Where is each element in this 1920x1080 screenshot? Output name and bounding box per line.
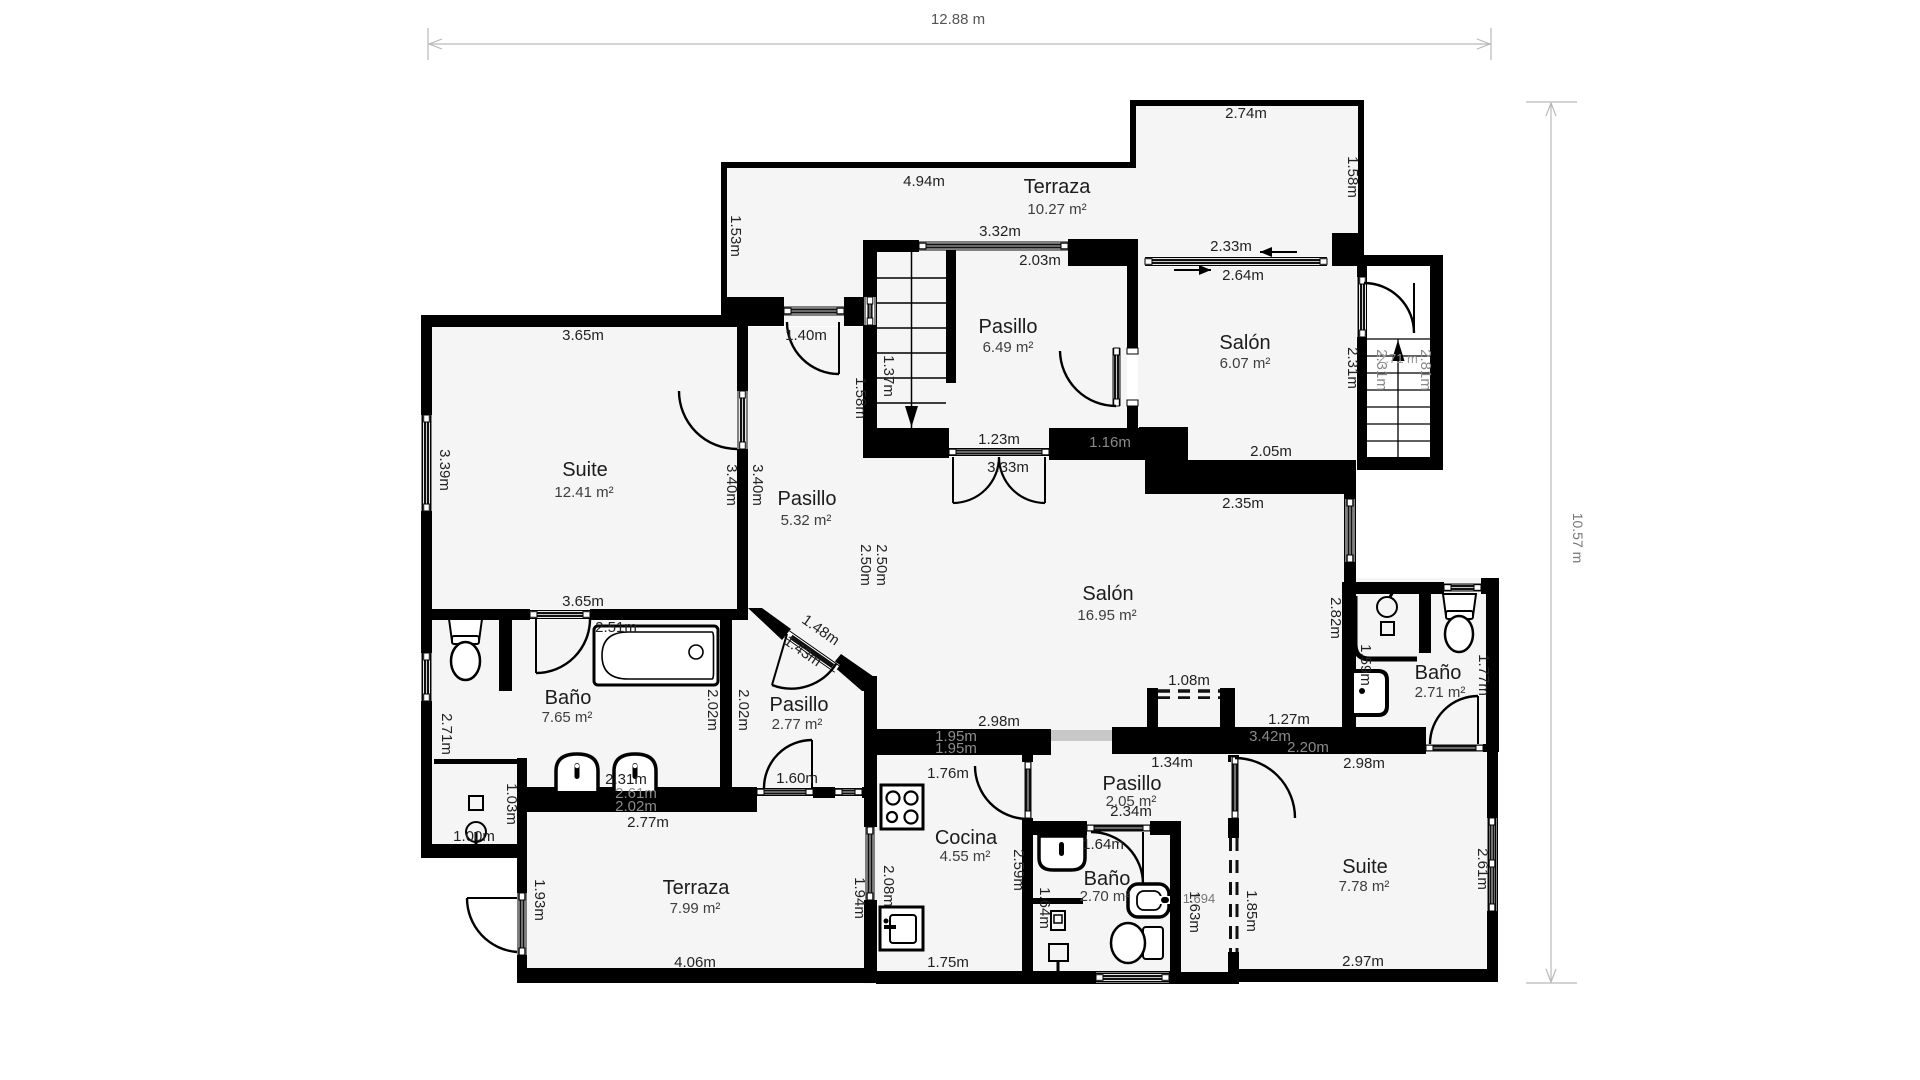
svg-text:3.39m: 3.39m [436, 449, 453, 491]
svg-text:2.50m: 2.50m [857, 544, 874, 586]
svg-text:2.98m: 2.98m [1343, 755, 1385, 772]
svg-text:3.33m: 3.33m [987, 459, 1029, 476]
svg-text:6.49 m²: 6.49 m² [983, 339, 1034, 356]
svg-text:2.33m: 2.33m [1210, 238, 1252, 255]
svg-text:2.71 m: 2.71 m [1378, 351, 1418, 366]
svg-text:2.02m: 2.02m [704, 689, 721, 731]
svg-text:1.23m: 1.23m [978, 431, 1020, 448]
svg-text:Pasillo: Pasillo [778, 488, 837, 510]
svg-text:1.64m: 1.64m [1082, 836, 1124, 853]
svg-text:3.40m: 3.40m [723, 464, 740, 506]
svg-text:Pasillo: Pasillo [770, 694, 829, 716]
svg-text:1.00m: 1.00m [453, 828, 495, 845]
svg-text:2.02m: 2.02m [615, 798, 657, 815]
svg-text:1.95m: 1.95m [935, 740, 977, 757]
svg-text:1.40m: 1.40m [785, 327, 827, 344]
svg-text:12.88 m: 12.88 m [931, 11, 985, 28]
svg-text:7.65 m²: 7.65 m² [542, 709, 593, 726]
svg-text:2.59m: 2.59m [1010, 849, 1027, 891]
svg-text:3.65m: 3.65m [562, 327, 604, 344]
svg-text:1.27m: 1.27m [1268, 711, 1310, 728]
svg-text:Terraza: Terraza [663, 877, 731, 899]
svg-text:2.74m: 2.74m [1225, 105, 1267, 122]
svg-text:7.99 m²: 7.99 m² [670, 900, 721, 917]
svg-text:7.78 m²: 7.78 m² [1339, 878, 1390, 895]
svg-text:2.82m: 2.82m [1327, 597, 1344, 639]
svg-text:1.58m: 1.58m [1344, 156, 1361, 198]
svg-text:3.40m: 3.40m [749, 464, 766, 506]
svg-text:1.08m: 1.08m [1168, 672, 1210, 689]
svg-text:2.81m: 2.81m [1417, 349, 1434, 391]
svg-text:3.32m: 3.32m [979, 223, 1021, 240]
svg-text:Baño: Baño [1415, 662, 1462, 684]
svg-text:Baño: Baño [545, 687, 592, 709]
svg-text:2.77 m²: 2.77 m² [772, 716, 823, 733]
svg-text:2.71 m²: 2.71 m² [1415, 684, 1466, 701]
svg-text:2.03m: 2.03m [1019, 252, 1061, 269]
svg-text:1.94m: 1.94m [851, 877, 868, 919]
svg-text:2.51m: 2.51m [595, 619, 637, 636]
svg-text:2.98m: 2.98m [978, 713, 1020, 730]
svg-text:16.95 m²: 16.95 m² [1077, 607, 1136, 624]
svg-text:Pasillo: Pasillo [979, 316, 1038, 338]
svg-text:2.64m: 2.64m [1222, 267, 1264, 284]
svg-text:6.07 m²: 6.07 m² [1220, 355, 1271, 372]
svg-text:2.50m: 2.50m [873, 544, 890, 586]
svg-text:4.55 m²: 4.55 m² [940, 848, 991, 865]
svg-text:1.16m: 1.16m [1089, 434, 1131, 451]
svg-text:1.03m: 1.03m [503, 783, 520, 825]
svg-text:Baño: Baño [1084, 868, 1131, 890]
svg-text:Suite: Suite [562, 459, 608, 481]
svg-text:1.85m: 1.85m [1243, 890, 1260, 932]
svg-text:2.05m: 2.05m [1250, 443, 1292, 460]
svg-text:3.42m: 3.42m [1249, 728, 1291, 745]
svg-text:1.60m: 1.60m [776, 770, 818, 787]
svg-text:Pasillo: Pasillo [1103, 773, 1162, 795]
svg-text:2.77m: 2.77m [627, 814, 669, 831]
svg-text:Salón: Salón [1219, 332, 1270, 354]
svg-text:2.20m: 2.20m [1287, 739, 1329, 756]
svg-text:1.76m: 1.76m [927, 765, 969, 782]
svg-text:Cocina: Cocina [935, 827, 998, 849]
svg-text:1.63m: 1.63m [1186, 891, 1203, 933]
svg-text:1.34m: 1.34m [1151, 754, 1193, 771]
svg-text:10.27 m²: 10.27 m² [1027, 201, 1086, 218]
svg-text:4.94m: 4.94m [903, 173, 945, 190]
svg-text:1.59m: 1.59m [1357, 644, 1374, 686]
svg-text:2.97m: 2.97m [1342, 953, 1384, 970]
svg-text:12.41 m²: 12.41 m² [554, 484, 613, 501]
svg-text:2.70 m²: 2.70 m² [1080, 888, 1131, 905]
svg-text:1.53m: 1.53m [727, 215, 744, 257]
svg-text:1.75m: 1.75m [927, 954, 969, 971]
svg-text:1.58m: 1.58m [852, 377, 869, 419]
svg-text:1.93m: 1.93m [531, 879, 548, 921]
svg-text:Salón: Salón [1082, 583, 1133, 605]
svg-text:2.08m: 2.08m [880, 865, 897, 907]
svg-text:2.35m: 2.35m [1222, 495, 1264, 512]
svg-text:1.37m: 1.37m [880, 355, 897, 397]
svg-text:1.64m: 1.64m [1036, 887, 1053, 929]
svg-text:2.02m: 2.02m [735, 689, 752, 731]
svg-text:3.65m: 3.65m [562, 593, 604, 610]
svg-text:10.57 m: 10.57 m [1570, 513, 1586, 564]
svg-text:Terraza: Terraza [1024, 176, 1092, 198]
svg-text:2.34m: 2.34m [1110, 803, 1152, 820]
svg-text:1.77m: 1.77m [1475, 654, 1492, 696]
svg-text:5.32 m²: 5.32 m² [781, 512, 832, 529]
svg-text:4.06m: 4.06m [674, 954, 716, 971]
svg-text:2.61m: 2.61m [1474, 848, 1491, 890]
svg-text:Suite: Suite [1342, 856, 1388, 878]
svg-text:2.31m: 2.31m [1344, 347, 1361, 389]
svg-text:2.71m: 2.71m [438, 713, 455, 755]
